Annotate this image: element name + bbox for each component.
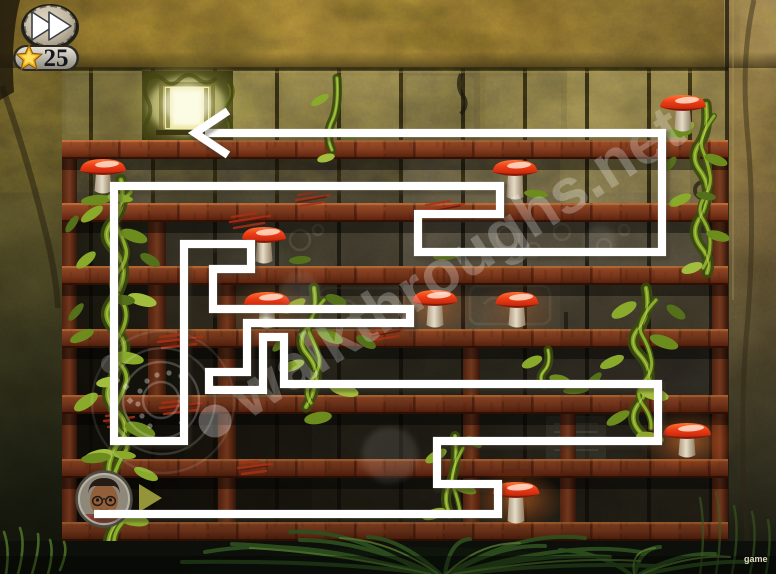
- svg-text:25: 25: [44, 45, 69, 72]
- svg-text:game: game: [744, 554, 768, 564]
